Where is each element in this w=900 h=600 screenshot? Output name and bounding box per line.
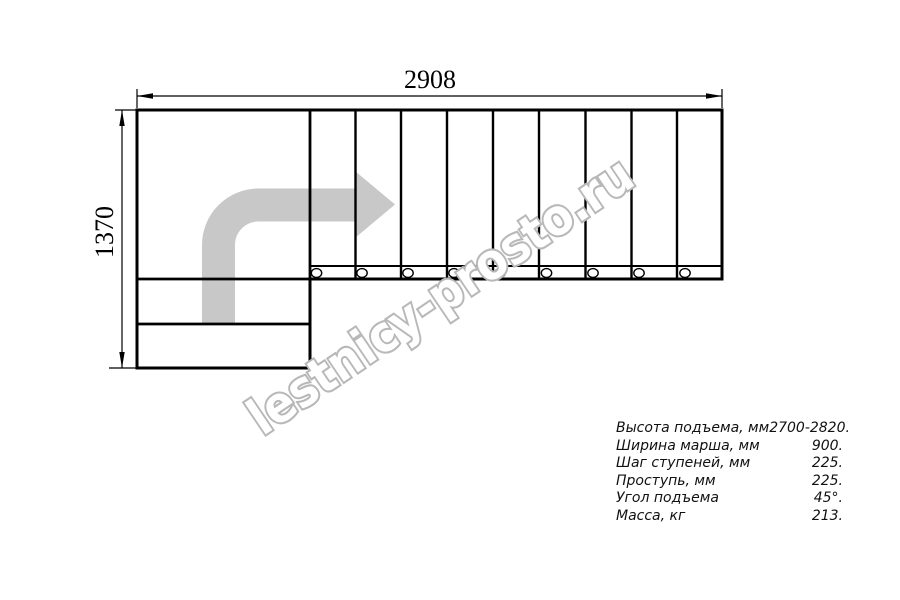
mount-circle <box>403 269 413 278</box>
spec-table: Высота подъема, мм 2700-2820. Ширина мар… <box>616 420 843 526</box>
left-dimension: 1370 <box>90 110 136 368</box>
spec-value: 225. <box>812 473 843 491</box>
dimension-arrow-down-icon <box>119 352 124 368</box>
spec-value: 2700-2820. <box>769 420 850 438</box>
mount-circle <box>311 269 321 278</box>
spec-value: 213. <box>812 508 843 526</box>
top-dimension-label: 2908 <box>404 65 456 94</box>
spec-label: Масса, кг <box>616 508 685 526</box>
mount-circle <box>634 269 644 278</box>
spec-row: Проступь, мм 225. <box>616 473 843 491</box>
spec-label: Проступь, мм <box>616 473 716 491</box>
spec-row: Угол подъема 45°. <box>616 490 843 508</box>
stair-plan-page: 2908 1370 lestnicy-prosto.ru Высота подъ… <box>0 0 900 600</box>
spec-value: 45°. <box>814 490 843 508</box>
spec-label: Ширина марша, мм <box>616 438 760 456</box>
spec-row: Ширина марша, мм 900. <box>616 438 843 456</box>
spec-value: 900. <box>812 438 843 456</box>
spec-row: Масса, кг 213. <box>616 508 843 526</box>
spec-value: 225. <box>812 455 843 473</box>
left-dimension-label: 1370 <box>90 206 119 258</box>
mount-circle <box>357 269 367 278</box>
spec-label: Угол подъема <box>616 490 719 508</box>
direction-arrow <box>219 171 396 324</box>
direction-arrow-shaft <box>219 205 357 324</box>
dimension-arrow-right-icon <box>706 93 722 98</box>
spec-row: Высота подъема, мм 2700-2820. <box>616 420 843 438</box>
mount-circle <box>680 269 690 278</box>
dimension-arrow-left-icon <box>137 93 153 98</box>
spec-label: Высота подъема, мм <box>616 420 769 438</box>
mount-circle <box>541 269 551 278</box>
top-dimension: 2908 <box>137 65 722 108</box>
spec-row: Шаг ступеней, мм 225. <box>616 455 843 473</box>
spec-label: Шаг ступеней, мм <box>616 455 750 473</box>
dimension-arrow-up-icon <box>119 110 124 126</box>
direction-arrow-head <box>355 171 395 238</box>
mount-circle <box>588 269 598 278</box>
